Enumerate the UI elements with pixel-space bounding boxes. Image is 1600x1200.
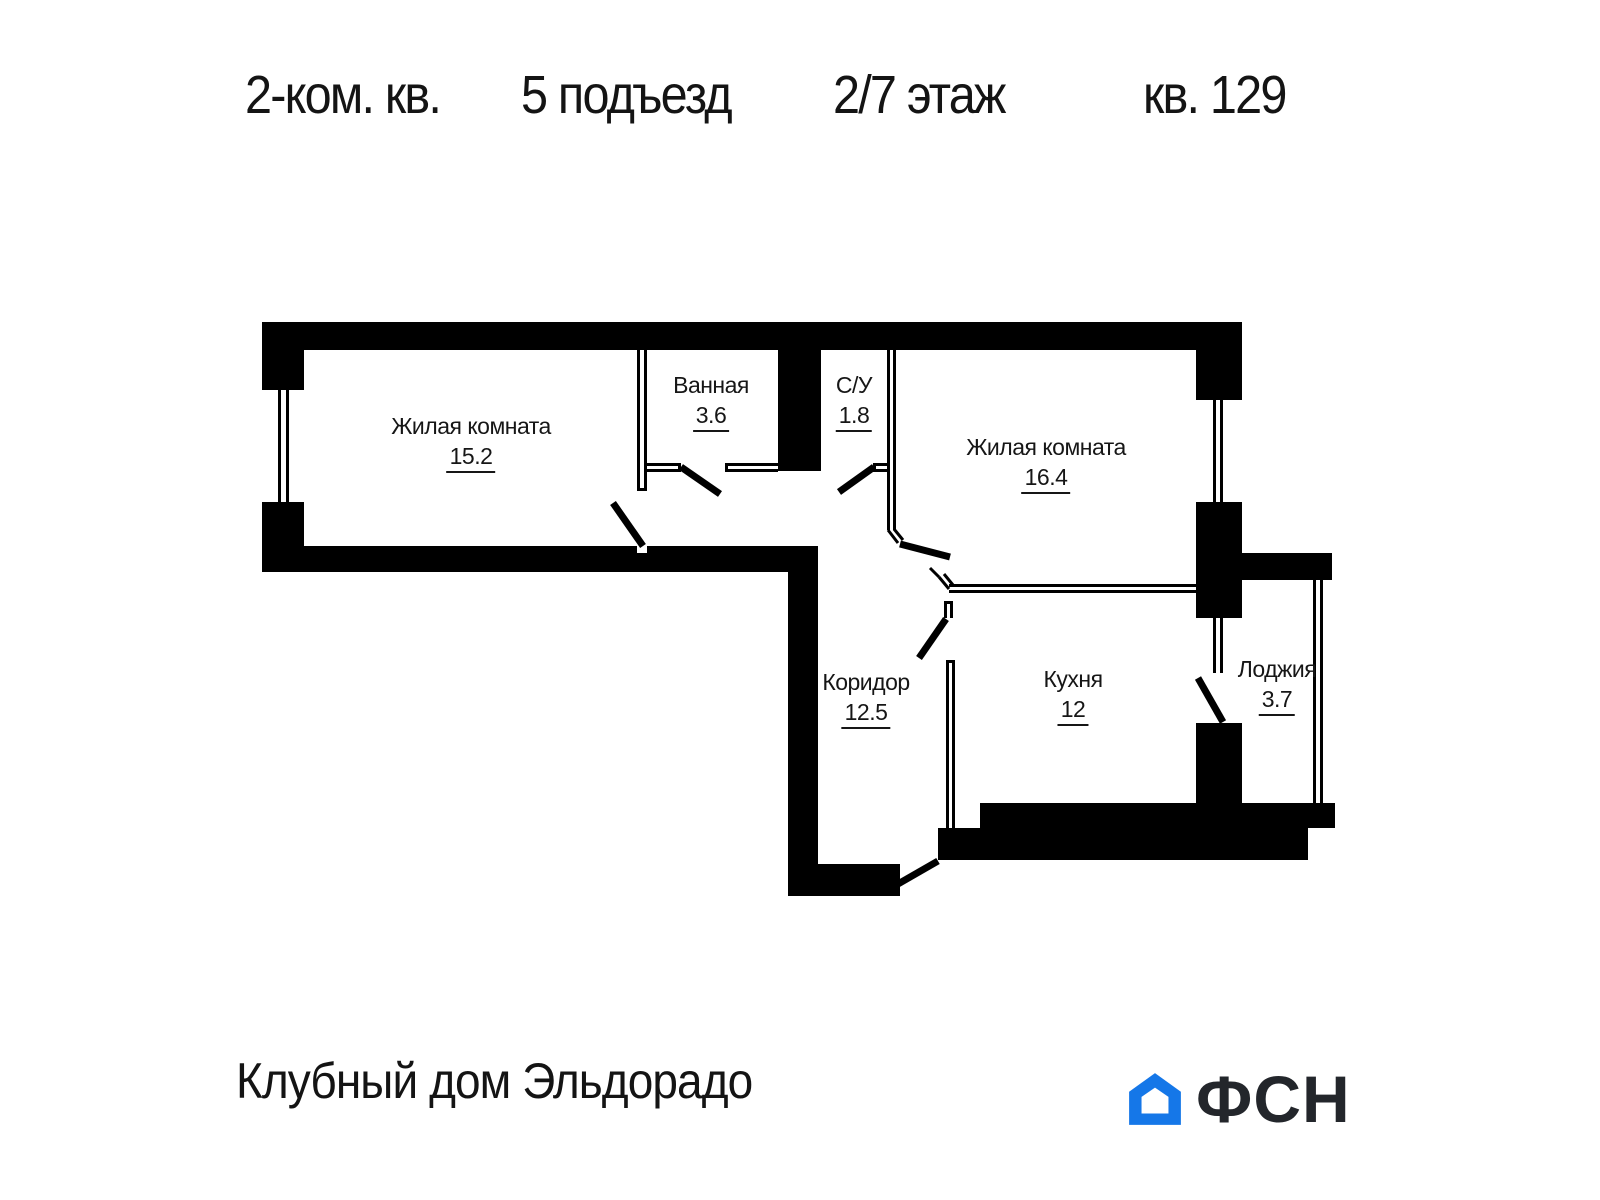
house-icon	[1126, 1070, 1184, 1128]
room-name: С/У	[836, 372, 872, 399]
diagonal-door-jambs	[888, 529, 953, 589]
room-label-loggia: Лоджия 3.7	[1238, 656, 1317, 716]
project-name: Клубный дом Эльдорадо	[236, 1052, 752, 1110]
room-name: Кухня	[1043, 666, 1102, 693]
room-name: Жилая комната	[391, 413, 551, 440]
room-area: 16.4	[1022, 464, 1071, 494]
room-name: Жилая комната	[966, 434, 1126, 461]
room-label-kitchen: Кухня 12	[1043, 666, 1102, 726]
floor-plan-page: 2-ком. кв. 5 подъезд 2/7 этаж кв. 129	[0, 0, 1600, 1200]
room-area: 3.6	[693, 402, 729, 432]
logo-text: ФСН	[1196, 1066, 1351, 1132]
room-area: 3.7	[1259, 686, 1295, 716]
developer-logo: ФСН	[1126, 1066, 1351, 1132]
room-area: 15.2	[447, 443, 496, 473]
room-area: 12	[1058, 696, 1089, 726]
floor-plan-drawing	[0, 0, 1600, 1200]
room-name: Ванная	[673, 372, 749, 399]
room-area: 12.5	[842, 699, 891, 729]
room-label-living-room-1: Жилая комната 15.2	[391, 413, 551, 473]
room-label-corridor: Коридор 12.5	[822, 669, 909, 729]
room-label-wc: С/У 1.8	[836, 372, 872, 432]
room-area: 1.8	[836, 402, 872, 432]
outer-walls	[262, 322, 1335, 896]
room-name: Коридор	[822, 669, 909, 696]
room-label-bathroom: Ванная 3.6	[673, 372, 749, 432]
room-name: Лоджия	[1238, 656, 1317, 683]
room-label-living-room-2: Жилая комната 16.4	[966, 434, 1126, 494]
